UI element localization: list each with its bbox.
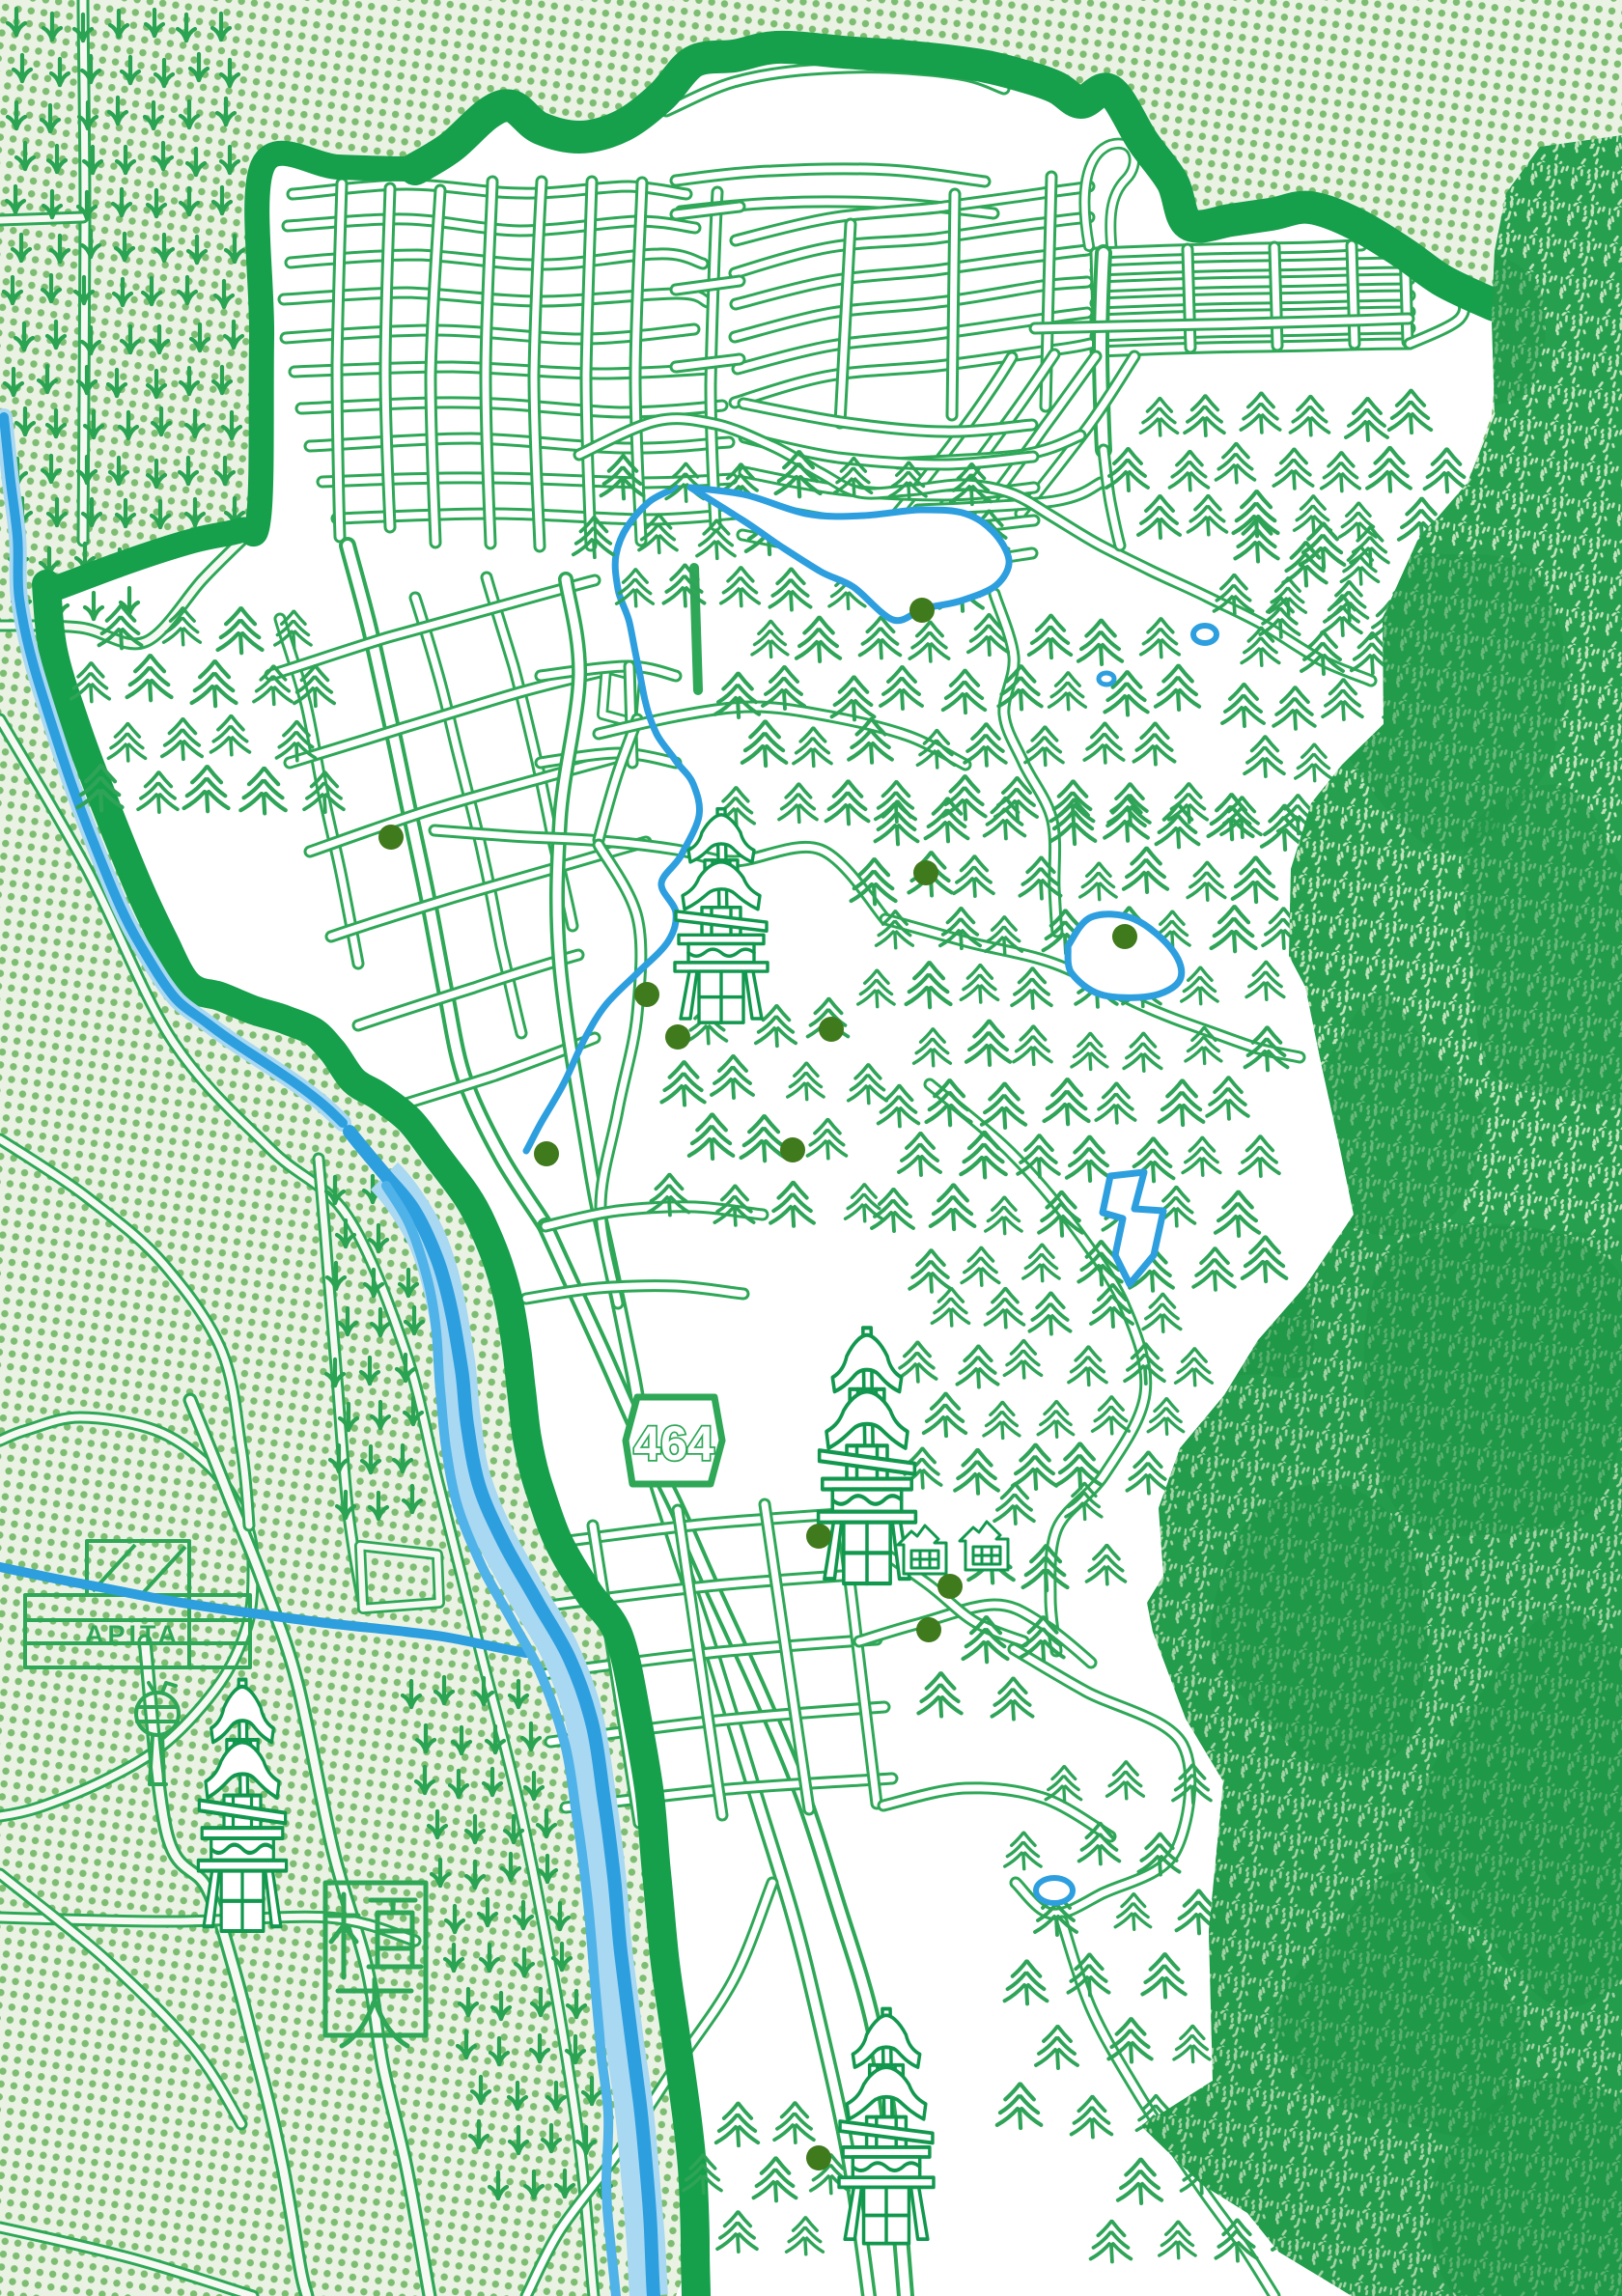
svg-text:APITA: APITA xyxy=(85,1620,181,1649)
svg-text:464: 464 xyxy=(633,1416,714,1470)
